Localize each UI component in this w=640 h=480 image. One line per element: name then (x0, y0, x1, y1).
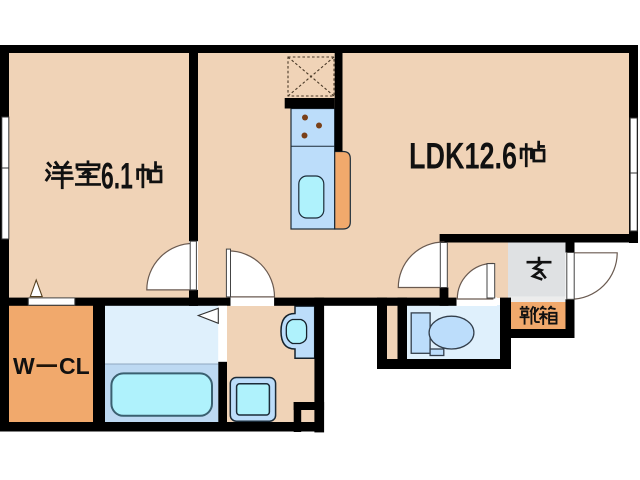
svg-text:LDK12.6: LDK12.6 (409, 136, 517, 177)
svg-text:W: W (13, 353, 35, 379)
svg-text:CL: CL (59, 353, 90, 379)
svg-text:6.1: 6.1 (101, 155, 133, 197)
